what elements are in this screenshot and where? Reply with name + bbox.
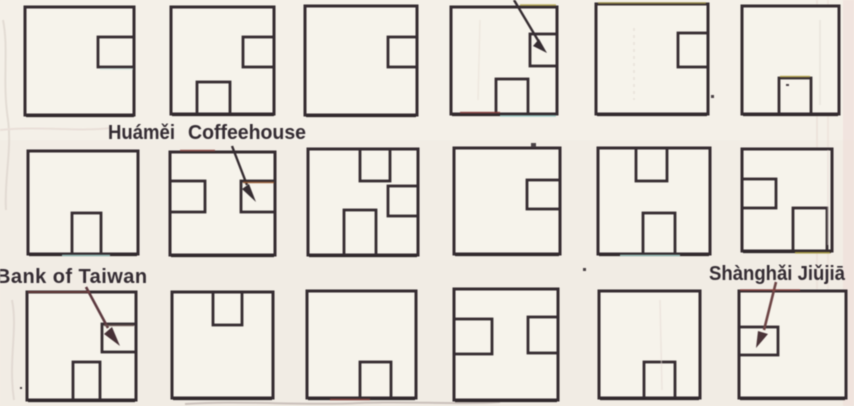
svg-text:Bank of Taiwan: Bank of Taiwan [0,266,148,288]
svg-text:Huáměi: Huáměi [108,122,175,144]
svg-text:Shànghǎi Jiǔjiā: Shànghǎi Jiǔjiā [709,263,846,285]
svg-text:Coffeehouse: Coffeehouse [188,122,306,144]
